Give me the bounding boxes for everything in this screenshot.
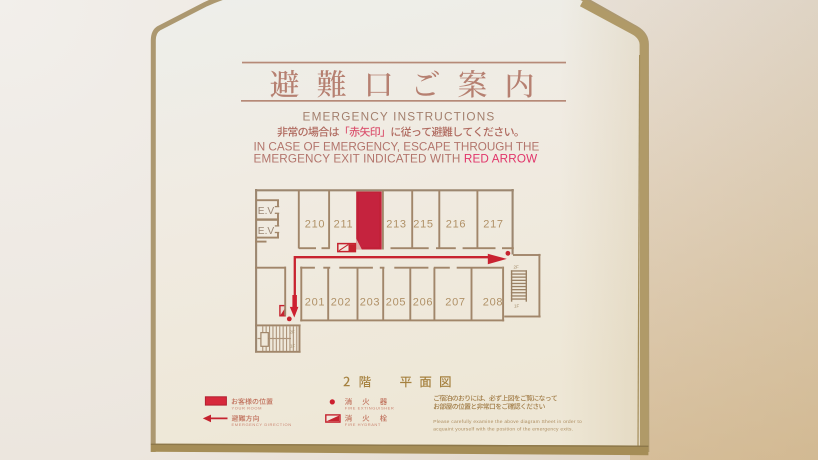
svg-text:216: 216 <box>446 219 466 231</box>
svg-text:FIRE EXTINGUISHER: FIRE EXTINGUISHER <box>345 405 395 410</box>
svg-text:203: 203 <box>360 297 380 309</box>
svg-text:202: 202 <box>331 297 351 309</box>
svg-text:2F: 2F <box>290 330 296 335</box>
svg-text:217: 217 <box>483 219 503 231</box>
svg-text:2F: 2F <box>514 264 520 269</box>
svg-text:EMERGENCY EXIT INDICATED WITH: EMERGENCY EXIT INDICATED WITH RED ARROW <box>254 153 538 166</box>
svg-text:208: 208 <box>483 297 503 309</box>
svg-text:205: 205 <box>386 297 406 309</box>
svg-text:YOUR ROOM: YOUR ROOM <box>232 405 263 410</box>
svg-text:IN CASE OF EMERGENCY, ESCAPE T: IN CASE OF EMERGENCY, ESCAPE THROUGH THE <box>254 140 540 153</box>
svg-text:215: 215 <box>413 219 433 231</box>
svg-text:211: 211 <box>334 219 354 231</box>
svg-text:Please carefully examine the a: Please carefully examine the above diagr… <box>433 419 582 425</box>
svg-text:FIRE HYDRANT: FIRE HYDRANT <box>345 422 381 427</box>
svg-text:207: 207 <box>445 297 465 309</box>
svg-text:1F: 1F <box>290 344 296 349</box>
svg-text:206: 206 <box>413 297 433 309</box>
svg-text:EMERGENCY DIRECTION: EMERGENCY DIRECTION <box>232 422 292 427</box>
svg-text:213: 213 <box>386 219 406 231</box>
svg-text:EMERGENCY INSTRUCTIONS: EMERGENCY INSTRUCTIONS <box>303 110 496 124</box>
svg-text:E.V: E.V <box>258 226 275 237</box>
svg-text:acquaint yourself with the pos: acquaint yourself with the position of t… <box>433 427 573 433</box>
svg-text:E.V: E.V <box>258 206 275 217</box>
svg-text:210: 210 <box>305 219 325 231</box>
svg-text:201: 201 <box>305 297 325 309</box>
svg-text:1F: 1F <box>514 304 520 309</box>
